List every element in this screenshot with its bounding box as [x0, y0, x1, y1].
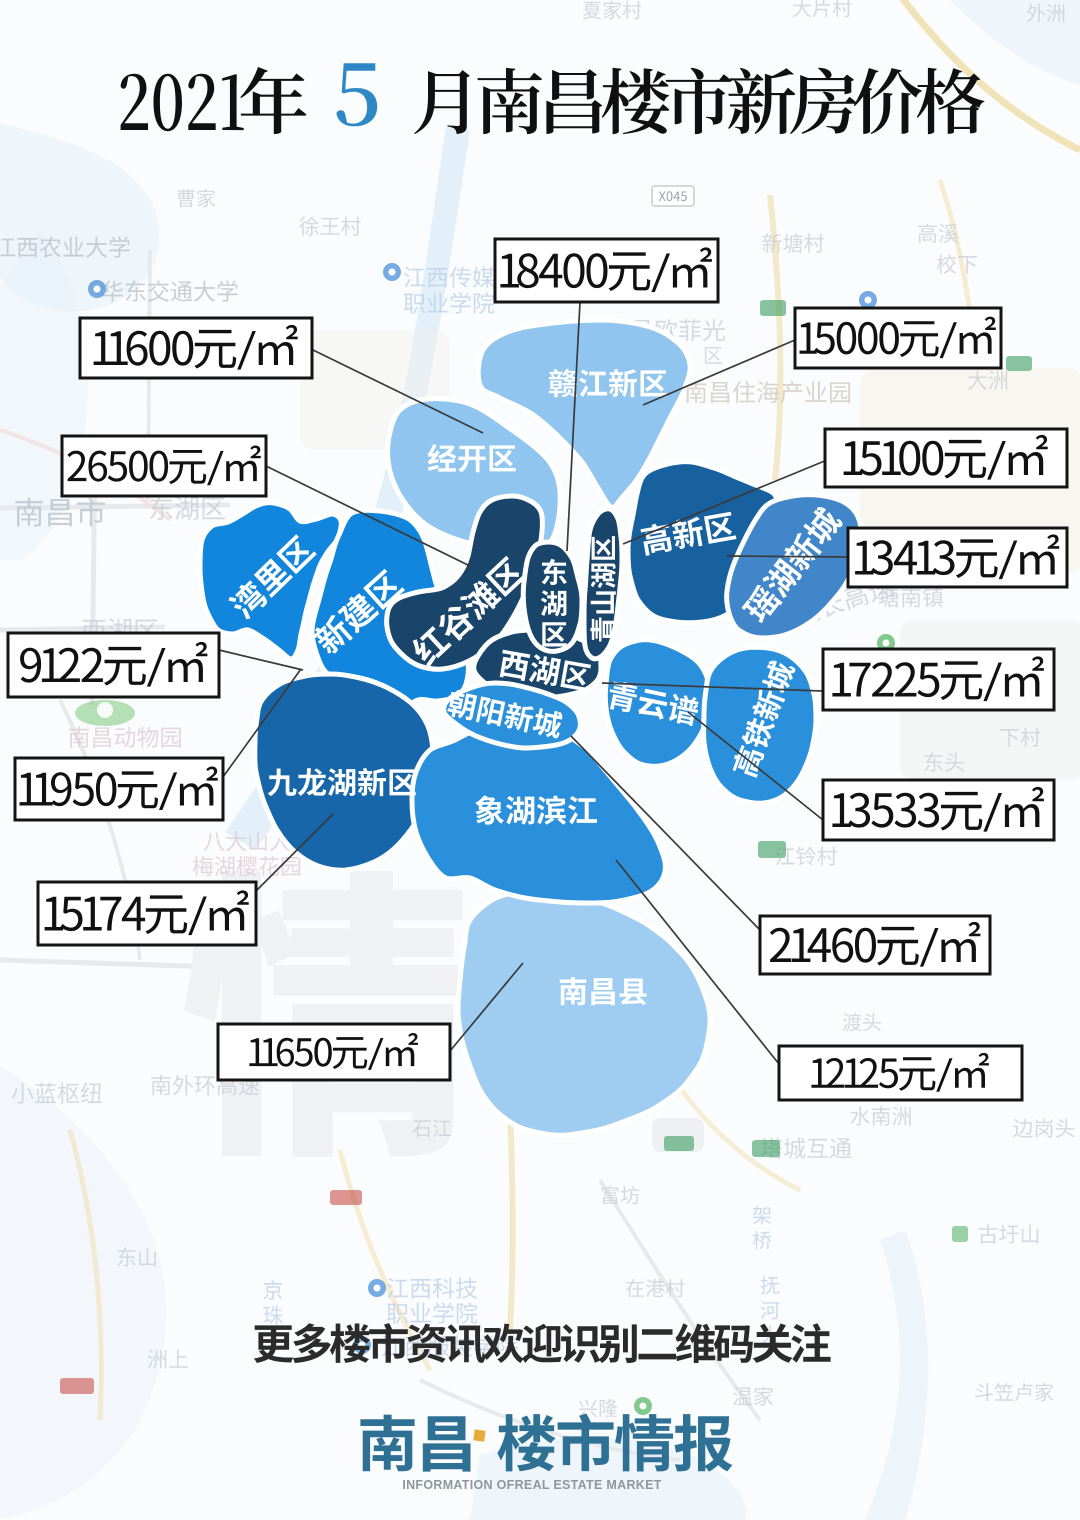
svg-text:INFORMATION OFREAL ESTATE MARK: INFORMATION OFREAL ESTATE MARKET — [402, 1478, 661, 1492]
